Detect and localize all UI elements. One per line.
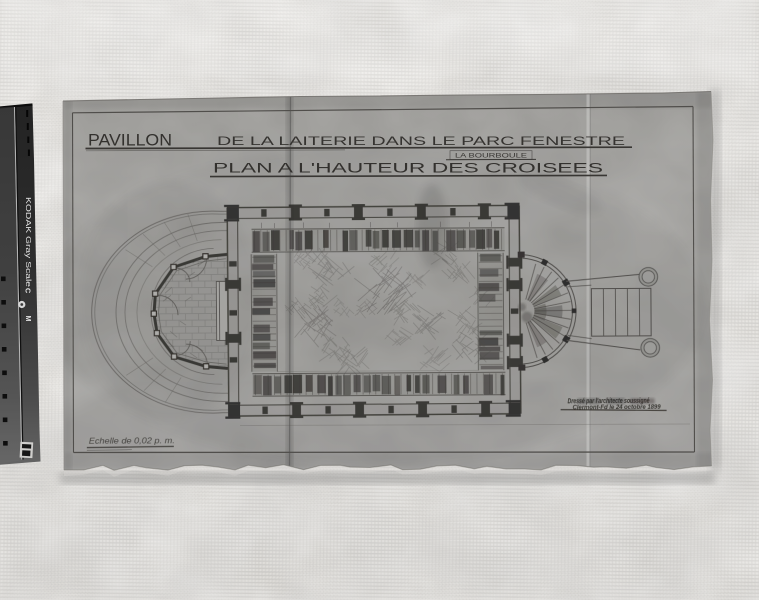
svg-text:PLAN A L'HAUTEUR DES CROISEES: PLAN A L'HAUTEUR DES CROISEES xyxy=(213,161,603,176)
svg-text:M: M xyxy=(24,316,33,322)
svg-text:DE LA LAITERIE DANS LE PARC FE: DE LA LAITERIE DANS LE PARC FENESTRE xyxy=(217,134,625,148)
svg-text:Echelle de 0,02 p. m.: Echelle de 0,02 p. m. xyxy=(89,435,175,446)
svg-text:C: C xyxy=(23,288,32,293)
svg-text:LA BOURBOULE: LA BOURBOULE xyxy=(455,153,528,160)
svg-text:PAVILLON: PAVILLON xyxy=(88,131,172,150)
svg-text:KODAK Gray Scale: KODAK Gray Scale xyxy=(24,197,33,287)
